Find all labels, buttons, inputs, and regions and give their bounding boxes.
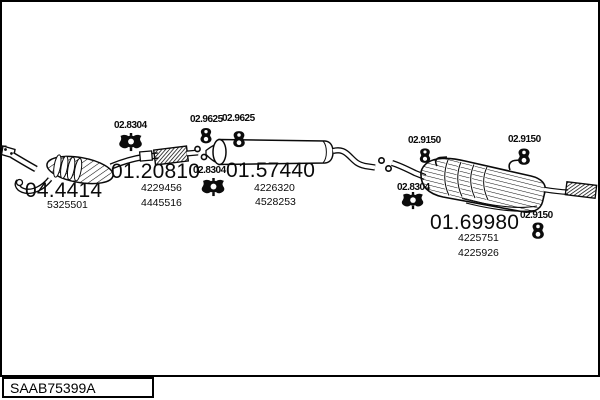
part-number: 4229456 — [141, 183, 182, 194]
part-number: 4226320 — [254, 183, 295, 194]
fitting-code-hanger: 02.9150 — [408, 136, 441, 146]
fitting-code-clamp: 02.8304 — [114, 121, 147, 131]
clamp-icon — [119, 133, 142, 151]
fitting-code-clamp: 02.8304 — [397, 183, 430, 193]
rubber-hanger-icon — [233, 131, 245, 147]
part-number: 4528253 — [255, 197, 296, 208]
downpipe — [12, 155, 36, 169]
part-code-front-pipe: 01.20810 — [111, 161, 200, 182]
part-number: 5325501 — [47, 200, 88, 211]
tailpipe-tip — [565, 182, 596, 199]
fitting-code-hanger: 02.9150 — [520, 211, 553, 221]
clamp-icon — [202, 178, 225, 196]
rubber-hanger-icon — [200, 128, 211, 143]
diagram-code: SAAB75399A — [10, 380, 96, 396]
part-code-rear-muffler: 01.69980 — [430, 212, 519, 233]
clamp-icon — [402, 192, 423, 209]
fitting-code-hanger: 02.9625 — [222, 114, 255, 124]
rubber-hanger-icon — [518, 148, 530, 164]
fitting-code-hanger: 02.9150 — [508, 135, 541, 145]
fitting-code-clamp: 02.8304 — [193, 166, 226, 176]
diagram-code-box: SAAB75399A — [2, 377, 154, 398]
part-number: 4225926 — [458, 248, 499, 259]
part-number: 4445516 — [141, 198, 182, 209]
part-number: 4225751 — [458, 233, 499, 244]
exhaust-parts-diagram-page: 04.4414 5325501 01.20810 4229456 4445516… — [0, 0, 600, 400]
part-code-middle-muffler: 01.57440 — [226, 160, 315, 181]
rubber-hanger-icon — [532, 222, 544, 238]
part-code-catalyst: 04.4414 — [25, 180, 102, 201]
rubber-hanger-icon — [420, 148, 430, 162]
fitting-code-hanger: 02.9625 — [190, 115, 223, 125]
